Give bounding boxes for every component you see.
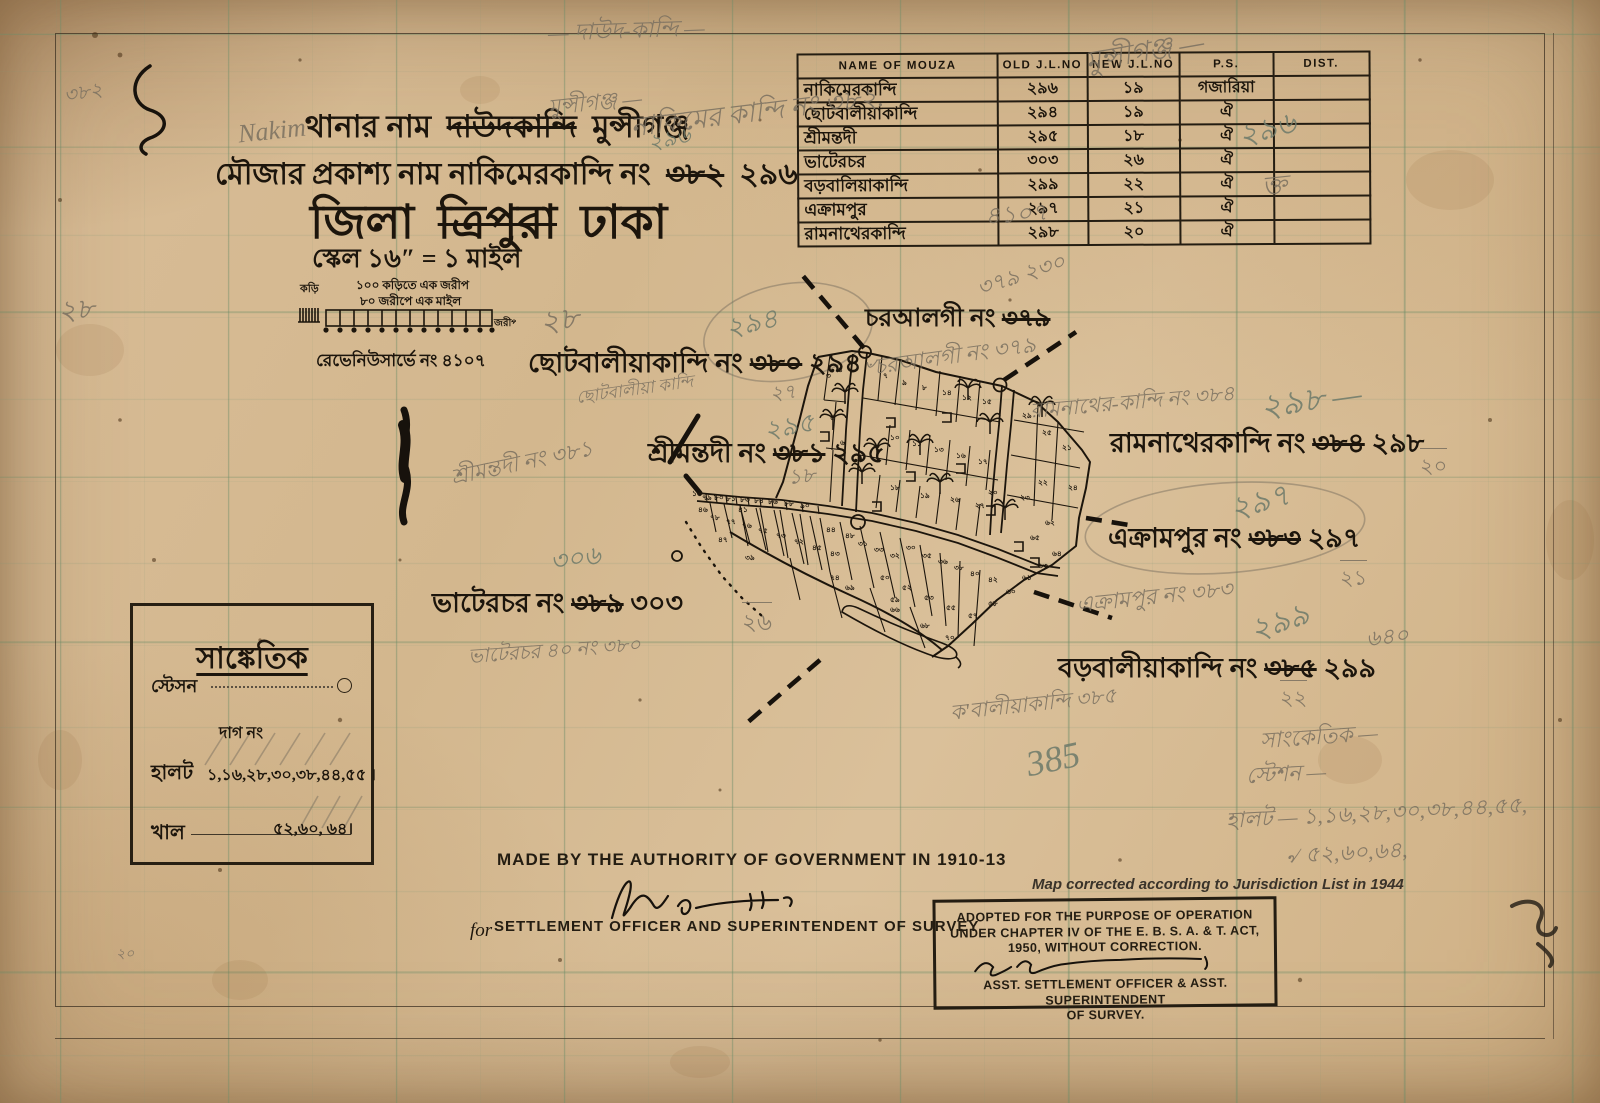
pencil-note: ৩০৬: [547, 535, 603, 586]
pencil-note: ২৮: [537, 294, 583, 350]
pencil-note: রামনাথের-কান্দি নং ৩৮৪: [1029, 377, 1236, 430]
pencil-note: ২১: [1340, 560, 1367, 597]
pencil-note: 385: [1022, 733, 1084, 785]
pencil-note: ৵ ৫২,৬০,৬৪,: [1285, 833, 1408, 876]
pencil-note: — দাউদ-কান্দি —: [547, 9, 705, 53]
pencil-note: হালট — ১,১৬,২৮,৩০,৩৮,৪৪,৫৫,: [1225, 788, 1528, 841]
pencil-note: ২৮: [56, 287, 96, 337]
pencil-note: ২৬: [742, 602, 772, 643]
pencil-note: ২০: [116, 942, 134, 966]
pencil-note: ২২: [1280, 680, 1307, 717]
pencil-note: ক'বালীয়াকান্দি ৩৮৫: [949, 679, 1119, 731]
pencil-note: ৩৮২: [61, 75, 105, 114]
survey-map-sheet: থানার নাম দাউদকান্দি মুন্সীগঞ্জ মৌজার প্…: [0, 0, 1600, 1103]
pencil-note: ২৯৪: [722, 298, 783, 353]
pencil-note: ২৯৭: [1224, 471, 1296, 537]
pencil-note: ৬৪০: [1364, 618, 1411, 659]
pencil-note: ৩৭৯ ২৩০: [973, 245, 1071, 308]
pencil-note: ৪১০৭: [984, 194, 1049, 238]
pencil-note: এক্রামপুর নং ৩৮৩: [1074, 572, 1234, 625]
pencil-note: ক্ত: [1260, 164, 1290, 210]
pencil-note: Nakim: [237, 113, 308, 150]
pencil-note: ভাটেরচর ৪০ নং ৩৮০: [467, 630, 642, 675]
pencil-annotations: ৩৮২— দাউদ-কান্দি —নাকিমের কান্দি নং ৩৮২.…: [0, 0, 1600, 1103]
pencil-note: ২৯৬: [645, 118, 695, 163]
pencil-note: ১৮: [787, 459, 817, 496]
pencil-note: মুন্সীগঞ্জ —: [1082, 20, 1208, 87]
pencil-note: ৺চরআলগী নং ৩৭৯: [858, 328, 1038, 389]
pencil-note: ২৯৯: [1243, 590, 1317, 658]
pencil-note: স্টেশন —: [1245, 755, 1327, 796]
pencil-note: শ্রীমন্তদী নং ৩৮১: [448, 431, 597, 497]
pencil-note: ২৯৮ —: [1257, 367, 1366, 437]
pencil-note: ২০: [1420, 448, 1447, 485]
pencil-note: ২৯৬: [1232, 98, 1302, 162]
pencil-note: ছোটবালীয়া কান্দি: [575, 369, 696, 413]
pencil-note: ২৯৫: [761, 402, 819, 454]
